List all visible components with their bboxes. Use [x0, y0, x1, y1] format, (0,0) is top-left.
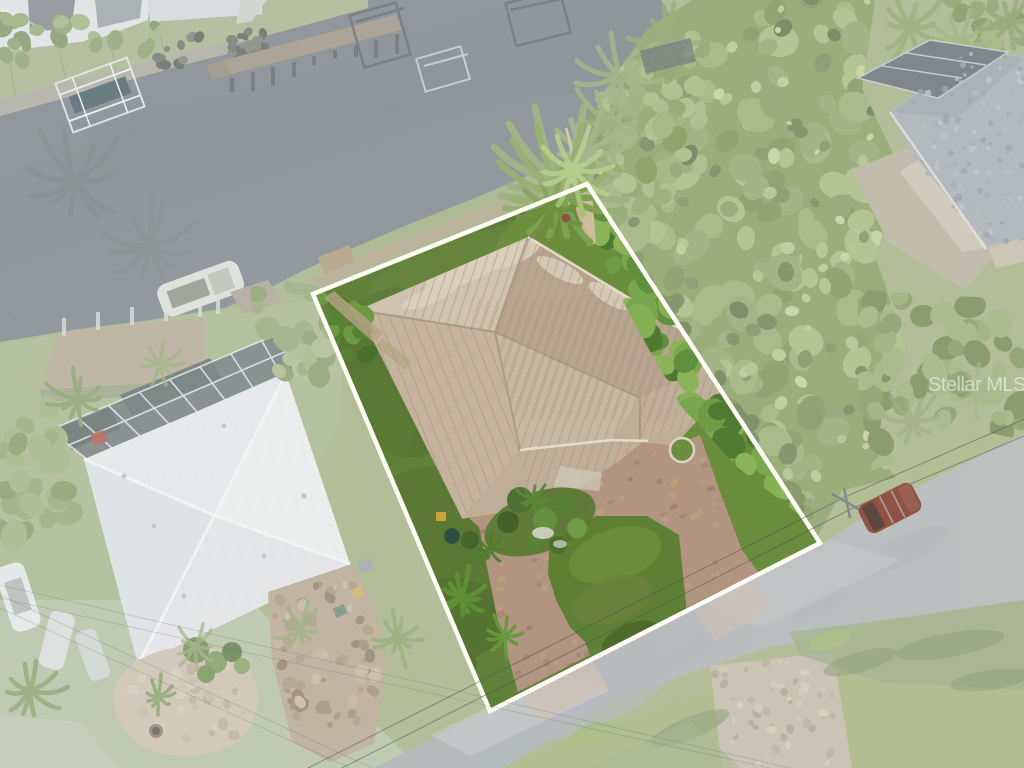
svg-text:Stellar MLS: Stellar MLS	[928, 374, 1024, 396]
